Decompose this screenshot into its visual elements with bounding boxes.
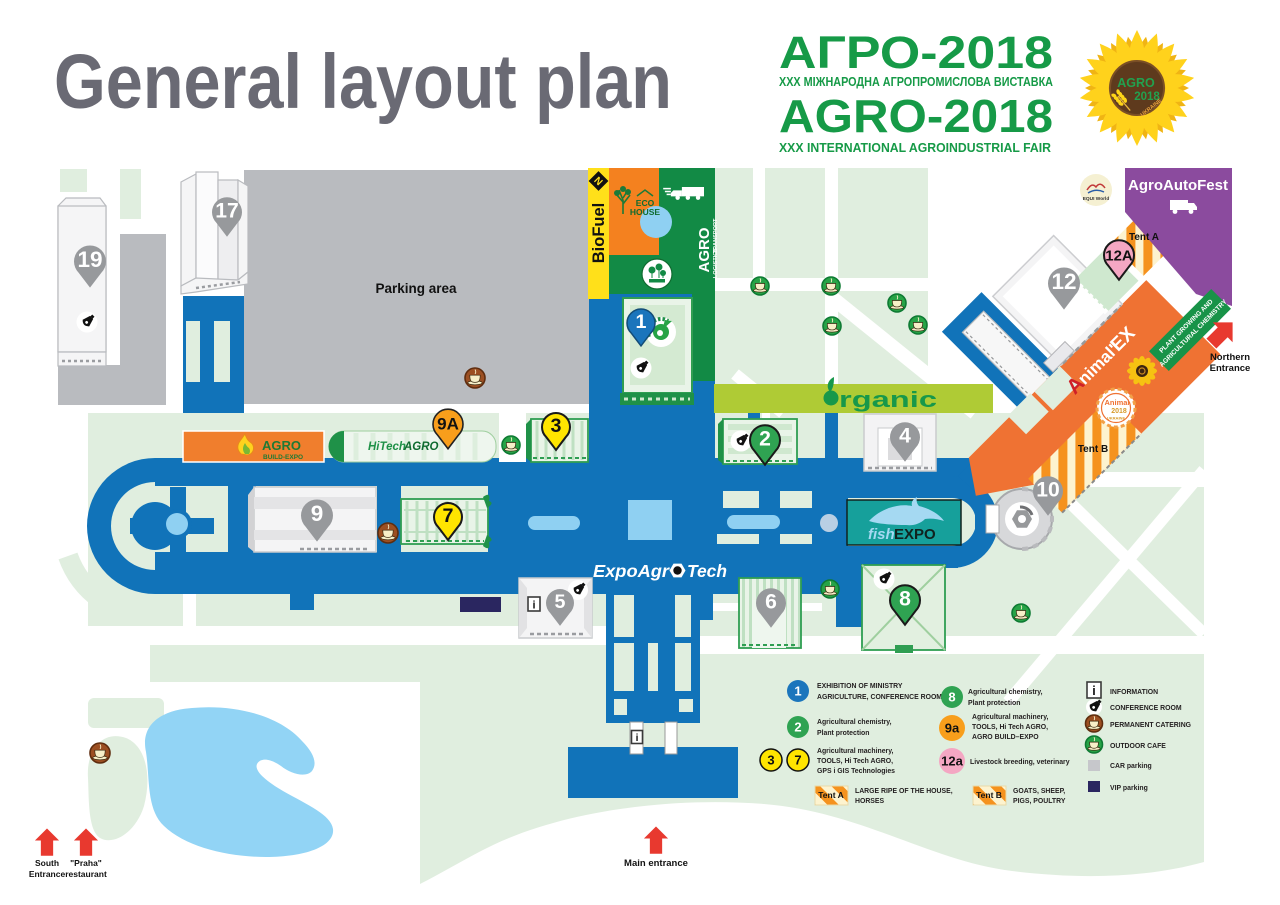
svg-text:2: 2 [759, 427, 771, 450]
svg-text:LOGISTICS: LOGISTICS [713, 248, 719, 278]
svg-text:HORSES: HORSES [855, 798, 885, 805]
svg-text:UKRAINE: UKRAINE [1107, 416, 1126, 421]
svg-text:EXHIBITION OF MINISTRY: EXHIBITION OF MINISTRY [817, 683, 903, 690]
svg-text:9A: 9A [437, 414, 459, 433]
svg-text:Agricultural chemistry,: Agricultural chemistry, [817, 719, 892, 726]
svg-text:BioFuel: BioFuel [590, 203, 608, 264]
svg-text:12a: 12a [941, 754, 963, 769]
svg-text:CONFERENCE ROOM: CONFERENCE ROOM [1110, 705, 1182, 712]
svg-text:10: 10 [1036, 478, 1059, 501]
svg-text:Plant protection: Plant protection [968, 700, 1020, 707]
svg-text:fish: fish [868, 526, 895, 543]
svg-text:Plant protection: Plant protection [817, 730, 869, 737]
svg-text:9a: 9a [945, 721, 960, 736]
svg-text:Parking area: Parking area [375, 281, 457, 296]
svg-text:6: 6 [765, 590, 777, 613]
svg-text:Entrance: Entrance [29, 869, 66, 879]
svg-text:Northern: Northern [1210, 352, 1250, 363]
svg-text:Agricultural machinery,: Agricultural machinery, [817, 748, 894, 755]
svg-text:8: 8 [948, 690, 955, 705]
svg-text:Tent A: Tent A [1129, 232, 1159, 243]
svg-text:АГРО-2018: АГРО-2018 [779, 27, 1053, 78]
svg-text:EXPO: EXPO [894, 526, 936, 543]
svg-text:AGRO: AGRO [403, 441, 439, 453]
svg-text:Tent B: Tent B [976, 790, 1002, 800]
svg-text:5: 5 [555, 591, 566, 613]
svg-text:CAR parking: CAR parking [1110, 763, 1152, 770]
svg-text:9: 9 [311, 501, 324, 526]
svg-text:HiTech: HiTech [368, 441, 406, 453]
svg-text:PIGS, POULTRY: PIGS, POULTRY [1013, 798, 1066, 805]
svg-text:7: 7 [443, 505, 454, 527]
svg-text:AGRO BUILD–EXPO: AGRO BUILD–EXPO [972, 734, 1039, 741]
svg-text:GOATS, SHEEP,: GOATS, SHEEP, [1013, 788, 1065, 795]
svg-text:Livestock breeding, veterinary: Livestock breeding, veterinary [970, 759, 1070, 766]
svg-text:GPS i GIS Technologies: GPS i GIS Technologies [817, 768, 895, 775]
svg-text:Animal: Animal [1104, 398, 1129, 407]
svg-text:LARGE RIPE OF THE HOUSE,: LARGE RIPE OF THE HOUSE, [855, 788, 953, 795]
svg-text:ExpoAgr: ExpoAgr [593, 561, 670, 581]
svg-text:Agricultural chemistry,: Agricultural chemistry, [968, 689, 1043, 696]
svg-text:VIP parking: VIP parking [1110, 785, 1148, 792]
svg-text:i: i [1092, 684, 1095, 698]
svg-text:3: 3 [551, 415, 562, 437]
svg-text:4: 4 [899, 424, 911, 447]
svg-text:PERMANENT CATERING: PERMANENT CATERING [1110, 722, 1191, 729]
svg-text:AGRO-2018: AGRO-2018 [779, 90, 1053, 142]
svg-text:BUILD-EXPO: BUILD-EXPO [263, 454, 303, 461]
svg-text:AGRO: AGRO [262, 438, 301, 453]
svg-text:8: 8 [899, 587, 911, 610]
svg-text:Main entrance: Main entrance [624, 858, 688, 869]
svg-text:TOOLS, Hi Tech AGRO,: TOOLS, Hi Tech AGRO, [817, 758, 893, 765]
svg-text:Tech: Tech [687, 561, 727, 581]
svg-text:Entrance: Entrance [1210, 363, 1251, 374]
svg-text:i: i [636, 733, 639, 744]
svg-text:AGRO: AGRO [696, 227, 713, 272]
svg-text:South: South [35, 858, 59, 868]
svg-text:XXX INTERNATIONAL AGROINDUSTRI: XXX INTERNATIONAL AGROINDUSTRIAL FAIR [779, 140, 1052, 155]
svg-text:Tent B: Tent B [1078, 444, 1108, 455]
svg-text:XXX МІЖНАРОДНА АГРОПРОМИСЛОВА: XXX МІЖНАРОДНА АГРОПРОМИСЛОВА ВИСТАВКА [779, 75, 1053, 89]
svg-text:Tent A: Tent A [818, 790, 844, 800]
svg-text:OUTDOOR CAFE: OUTDOOR CAFE [1110, 743, 1166, 750]
svg-text:"Praha": "Praha" [70, 858, 102, 868]
svg-text:2018: 2018 [1111, 408, 1127, 415]
svg-text:12A: 12A [1105, 247, 1133, 264]
svg-text:rganic: rganic [839, 387, 937, 412]
svg-text:restaurant: restaurant [65, 869, 107, 879]
svg-text:General layout plan: General layout plan [54, 39, 672, 125]
svg-text:Agricultural machinery,: Agricultural machinery, [972, 714, 1049, 721]
svg-text:12: 12 [1051, 269, 1076, 294]
svg-text:AgroAutoFest: AgroAutoFest [1128, 177, 1228, 194]
svg-text:HOUSE: HOUSE [630, 207, 661, 217]
svg-text:19: 19 [77, 247, 102, 272]
svg-text:1: 1 [636, 311, 647, 333]
svg-text:INFORMATION: INFORMATION [1110, 689, 1158, 696]
svg-text:7: 7 [794, 753, 801, 768]
svg-text:i: i [532, 599, 535, 611]
svg-text:EQUI World: EQUI World [1083, 196, 1110, 202]
svg-text:3: 3 [767, 753, 774, 768]
svg-text:1: 1 [794, 684, 801, 699]
svg-text:TOOLS, Hi Tech AGRO,: TOOLS, Hi Tech AGRO, [972, 724, 1048, 731]
svg-text:AGRICULTURE, CONFERENCE ROOM: AGRICULTURE, CONFERENCE ROOM [817, 694, 942, 701]
svg-text:17: 17 [215, 199, 238, 222]
svg-text:AGRO: AGRO [1117, 76, 1155, 90]
svg-text:2: 2 [794, 720, 801, 735]
